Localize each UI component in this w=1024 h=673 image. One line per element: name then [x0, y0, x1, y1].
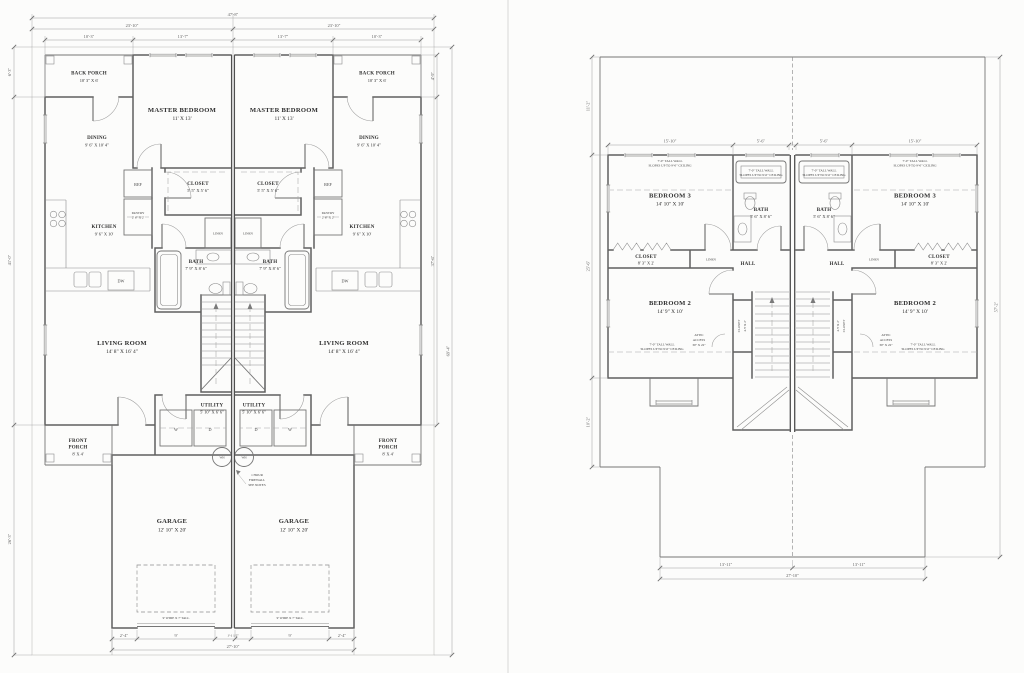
label-bath-left: BATH [189, 260, 204, 265]
label-bedroom2-right-dims: 14' 9" X 10' [902, 309, 928, 315]
note-slope-b2-left-2: SLOPES UP TO 9'-0" CEILING [640, 347, 684, 351]
dim-master-left: 13'-7" [178, 34, 189, 39]
label-utility-left: UTILITY [201, 404, 224, 409]
label-bedroom2-left: BEDROOM 2 [649, 300, 691, 307]
dim-jamb: 1'-1 1/2" [227, 634, 239, 638]
label-front-porch-left-1: FRONT [69, 439, 88, 444]
label-bath-right: BATH [817, 208, 832, 213]
label-linen-right: LINEN [243, 232, 254, 236]
dim-left-b: 25'-6" [586, 260, 591, 271]
label-wh-right: WH [242, 456, 248, 460]
label-dining-left-dims: 9' 6" X 10' 4" [85, 143, 109, 148]
label-living-left-dims: 14' 8" X 16' 4" [106, 349, 138, 355]
label-closet-left-dims: 8' 3" X 2' [638, 261, 655, 266]
dim-left-c: 26'-3" [7, 533, 12, 544]
dim-door-right: 9' [289, 633, 292, 638]
label-kitchen-right: KITCHEN [349, 225, 374, 230]
dim-left-c: 10'-2" [586, 416, 591, 427]
label-bedroom3-left-dims: 14' 10" X 10' [656, 202, 684, 208]
label-living-right: LIVING ROOM [319, 340, 369, 347]
label-utility-right-dims: 5' 10" X 6' 6" [242, 410, 266, 415]
note-attic-left-1: ATTIC [694, 333, 704, 337]
dim-bottom-width: 27'-10" [786, 573, 799, 578]
label-hall-right: HALL [830, 262, 845, 267]
label-utility-right: UTILITY [243, 404, 266, 409]
label-master-left-dims: 11' X 13' [172, 116, 191, 122]
label-closet2-left: CLOSET [737, 320, 741, 332]
label-pantry-left-dims: 2' 6" X 2' [132, 216, 145, 220]
dim-bath-right: 5'-6" [820, 139, 829, 144]
label-dw-left: DW [118, 279, 125, 284]
label-pantry-left: PANTRY [132, 211, 145, 215]
label-bath-right: BATH [263, 260, 278, 265]
dim-master-right: 13'-7" [278, 34, 289, 39]
dim-side-right: 2'-4" [338, 633, 347, 638]
label-kitchen-right-dims: 9' 6" X 10' [353, 232, 372, 237]
note-firewall-2: FIREWALL [249, 478, 265, 482]
label-linen-left: LINEN [213, 232, 224, 236]
label-linen-left: LINEN [706, 258, 717, 262]
label-hall-left: HALL [741, 262, 756, 267]
label-master-right: MASTER BEDROOM [250, 107, 319, 114]
label-pantry-right: PANTRY [322, 211, 335, 215]
label-closet-right-dims: 5' 5" X 5' 6" [257, 188, 279, 193]
label-front-porch-right-2: PORCH [378, 446, 397, 451]
label-bath-left-dims: 5' 6" X 8' 6" [750, 214, 772, 219]
note-slope-b2-right-1: 7'-0" TALL WALL [910, 343, 935, 347]
label-garage-door-left: 9' WIDE X 7' TALL [163, 616, 190, 620]
note-slope-top-right-2: SLOPES UP TO 9'-0" CEILING [893, 164, 937, 168]
dim-bedroom-right: 15'-10" [909, 139, 922, 144]
label-washer-left: W [174, 427, 178, 432]
label-front-porch-right-1: FRONT [379, 439, 398, 444]
dim-garage-width: 27'-10" [227, 644, 240, 649]
dim-right-b: 37'-6" [430, 255, 435, 266]
label-kitchen-left: KITCHEN [91, 225, 116, 230]
note-slope-bath-left-1: 7'-0" TALL WALL [748, 169, 773, 173]
note-slope-top-left-1: 7'-0" TALL WALL [657, 159, 682, 163]
label-bath-right-dims: 5' 6" X 8' 6" [813, 214, 835, 219]
dim-overall-height: 69'-4" [446, 345, 451, 356]
label-closet2-right: CLOSET [842, 320, 846, 332]
label-dining-left: DINING [87, 136, 107, 141]
dim-left-a: 6'-3" [7, 68, 12, 77]
dim-overall-height: 57'-2" [994, 301, 999, 312]
note-firewall-3: SEE NOTES [248, 483, 265, 487]
label-washer-right: W [288, 427, 292, 432]
label-linen-right: LINEN [869, 258, 880, 262]
dim-bath-left: 5'-6" [757, 139, 766, 144]
label-closet-left: CLOSET [635, 255, 657, 260]
dim-left-a: 11'-2" [586, 101, 591, 112]
label-ref-left: REF [134, 182, 142, 187]
note-slope-bath-left-2: SLOPES UP TO 9'-0" CEILING [739, 173, 783, 177]
label-bath-left-dims: 7' 9" X 8' 6" [185, 266, 207, 271]
label-master-right-dims: 11' X 13' [274, 116, 293, 122]
dim-bedroom-left: 15'-10" [664, 139, 677, 144]
label-dryer-left: D [208, 427, 211, 432]
label-garage-right: GARAGE [279, 518, 310, 525]
label-garage-left-dims: 12' 10" X 20' [158, 528, 186, 534]
dim-door-left: 9' [175, 633, 178, 638]
label-closet2-right-dims: 4.5' X 2' [836, 320, 840, 331]
label-living-right-dims: 14' 8" X 16' 4" [328, 349, 360, 355]
label-closet2-left-dims: 4.5' X 2' [743, 320, 747, 331]
dim-half-left: 23'-10" [126, 23, 139, 28]
dim-bottom-half-left: 13'-11" [720, 562, 733, 567]
label-bedroom2-right: BEDROOM 2 [894, 300, 936, 307]
note-slope-bath-right-1: 7'-0" TALL WALL [811, 169, 836, 173]
dim-right-a: 4'-9" [430, 72, 435, 81]
label-closet-left: CLOSET [187, 182, 209, 187]
note-slope-b2-left-1: 7'-0" TALL WALL [649, 343, 674, 347]
label-back-porch-right: BACK PORCH [359, 72, 395, 77]
label-pantry-right-dims: 2' 6" X 2' [322, 216, 335, 220]
note-slope-bath-right-2: SLOPES UP TO 9'-0" CEILING [802, 173, 846, 177]
note-attic-right-3: 30" X 22" [879, 343, 893, 347]
note-attic-right-1: ATTIC [881, 333, 891, 337]
label-ref-right: REF [324, 182, 332, 187]
label-wh-left: WH [220, 456, 226, 460]
dim-bottom-half-right: 13'-11" [853, 562, 866, 567]
label-garage-left: GARAGE [157, 518, 188, 525]
label-closet-left-dims: 5' 5" X 5' 6" [187, 188, 209, 193]
note-slope-top-left-2: SLOPES UP TO 9'-0" CEILING [648, 164, 692, 168]
label-front-porch-right-dims: 8' X 4' [382, 452, 394, 457]
dim-left-b: 41'-0" [7, 254, 12, 265]
label-living-left: LIVING ROOM [97, 340, 147, 347]
label-bedroom2-left-dims: 14' 9" X 10' [657, 309, 683, 315]
label-master-left: MASTER BEDROOM [148, 107, 217, 114]
label-garage-door-right: 9' WIDE X 7' TALL [277, 616, 304, 620]
label-dining-right-dims: 9' 6" X 10' 4" [357, 143, 381, 148]
dim-porch-right: 10'-3" [372, 34, 383, 39]
label-bedroom3-right-dims: 14' 10" X 10' [901, 202, 929, 208]
label-back-porch-right-dims: 10' 3" X 6' [368, 78, 387, 83]
note-attic-right-2: ACCESS [880, 338, 893, 342]
label-garage-right-dims: 12' 10" X 20' [280, 528, 308, 534]
label-dw-right: DW [342, 279, 349, 284]
label-bedroom3-left: BEDROOM 3 [649, 193, 691, 200]
label-closet-right: CLOSET [928, 255, 950, 260]
dim-porch-left: 10'-3" [84, 34, 95, 39]
sheet-background [0, 0, 1024, 673]
note-attic-left-2: ACCESS [693, 338, 706, 342]
note-slope-top-right-1: 7'-0" TALL WALL [902, 159, 927, 163]
dim-half-right: 23'-10" [328, 23, 341, 28]
label-front-porch-left-2: PORCH [68, 446, 87, 451]
note-slope-b2-right-2: SLOPES UP TO 9'-0" CEILING [901, 347, 945, 351]
dim-overall-width: 47'-8" [228, 12, 239, 17]
label-bath-right-dims: 7' 9" X 8' 6" [259, 266, 281, 271]
dim-side-left: 2'-4" [120, 633, 129, 638]
label-front-porch-left-dims: 8' X 4' [72, 452, 84, 457]
label-dining-right: DINING [359, 136, 379, 141]
label-back-porch-left-dims: 10' 3" X 6' [80, 78, 99, 83]
note-attic-left-3: 30" X 22" [692, 343, 706, 347]
label-kitchen-left-dims: 9' 6" X 10' [95, 232, 114, 237]
floor-plan-sheet: BACK PORCH 10' 3" X 6' BACK PORCH 10' 3"… [0, 0, 1024, 673]
floor-plan-drawing: BACK PORCH 10' 3" X 6' BACK PORCH 10' 3"… [0, 0, 1024, 673]
label-back-porch-left: BACK PORCH [71, 72, 107, 77]
label-bath-left: BATH [754, 208, 769, 213]
label-dryer-right: D [254, 427, 257, 432]
label-closet-right-dims: 8' 3" X 2' [931, 261, 948, 266]
label-bedroom3-right: BEDROOM 3 [894, 193, 936, 200]
label-closet-right: CLOSET [257, 182, 279, 187]
label-utility-left-dims: 5' 10" X 6' 6" [200, 410, 224, 415]
note-firewall-1: 1 HOUR [251, 473, 264, 477]
